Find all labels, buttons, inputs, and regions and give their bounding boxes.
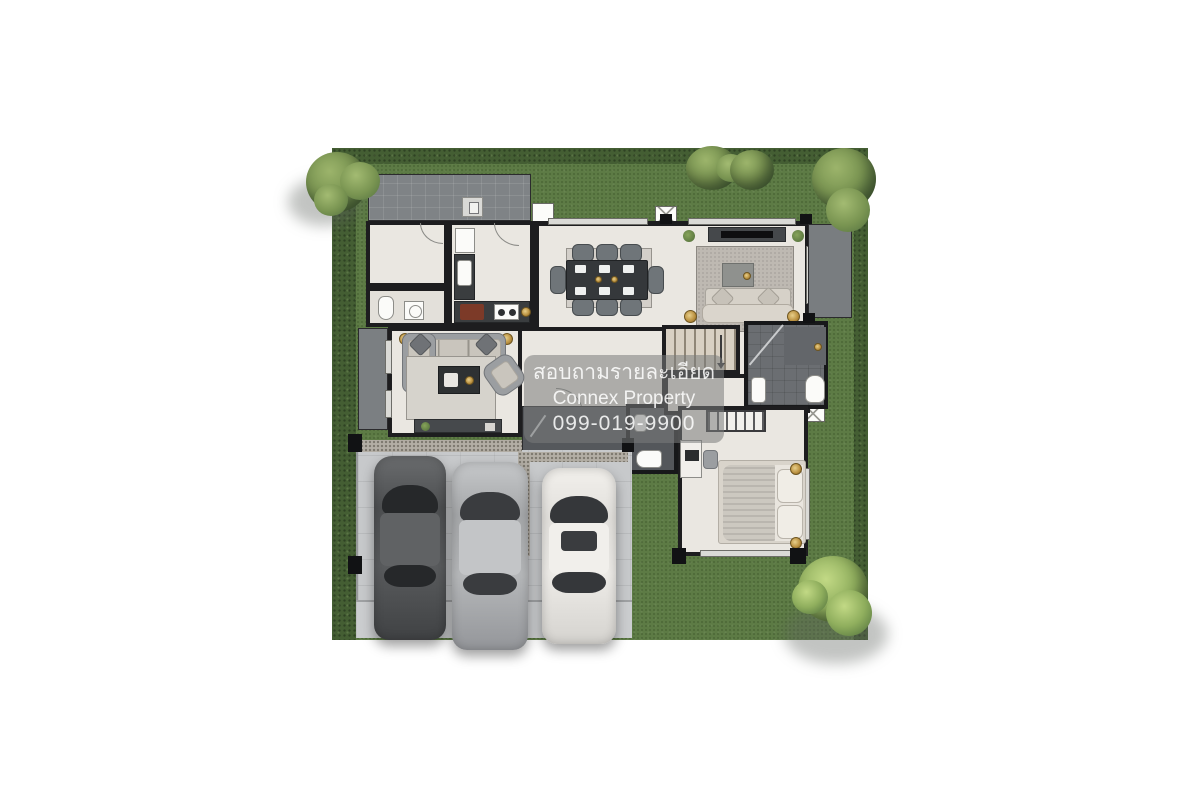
tv-console [708,227,786,242]
terrace-sink [462,197,483,217]
stove-icon [494,304,519,320]
car-dark-gray [374,456,446,640]
family-coffee-table [438,366,480,394]
tree [812,148,876,210]
dining-chair [620,298,642,316]
toilet-icon [805,375,825,403]
plant-icon [792,230,804,242]
plant-icon [683,230,695,242]
window [688,218,796,225]
bed-blanket [723,465,775,541]
gold-dish-icon [521,307,531,317]
watermark-line-phone: 099-019-9900 [553,411,696,438]
column-post [348,434,362,452]
washing-machine-icon [404,301,424,320]
car-silver [452,462,528,650]
watermark-line-brand: Connex Property [553,387,696,411]
utility-bathroom [366,287,448,327]
floor-plan: สอบถามรายละเอียด Connex Property 099-019… [0,0,1200,800]
tree [798,556,868,622]
column-post [672,548,686,564]
dining-chair [550,266,566,294]
sink-icon [751,377,766,403]
coffee-table [722,263,754,287]
shower-head-icon [814,343,822,351]
car-white [542,468,616,644]
window [385,390,392,418]
gravel-border [522,452,628,462]
kitchen-sink-icon [457,260,472,286]
column-post [790,548,806,564]
tree [730,150,774,190]
dining-chair [648,266,664,294]
watermark: สอบถามรายละเอียด Connex Property 099-019… [524,355,724,443]
family-tv-console [414,419,502,433]
food-tray-icon [460,304,484,320]
back-terrace [368,174,531,221]
pillow-icon [777,505,803,539]
dining-chair [596,298,618,316]
window [700,550,792,557]
toilet-icon [378,296,394,320]
column-post [800,214,812,224]
kitchen [448,221,534,327]
gravel-border [356,440,522,452]
window [385,340,392,374]
dining-table [566,260,648,300]
toilet-icon [636,450,662,468]
column-post [803,313,815,323]
sunroof [561,531,597,550]
desk-chair [703,450,718,469]
column-post [348,556,362,574]
speaker-icon [684,310,697,323]
tree [306,152,368,212]
shower-glass [749,324,784,365]
side-terrace [808,224,852,318]
column-post [660,214,672,224]
computer-monitor-icon [685,450,699,461]
desk [680,440,702,478]
west-terrace [358,328,388,430]
bathroom [744,321,828,409]
dining-chair [572,298,594,316]
window [548,218,648,225]
bedside-lamp-icon [790,463,802,475]
fridge-icon [455,228,475,253]
watermark-line-thai: สอบถามรายละเอียด [533,360,715,387]
